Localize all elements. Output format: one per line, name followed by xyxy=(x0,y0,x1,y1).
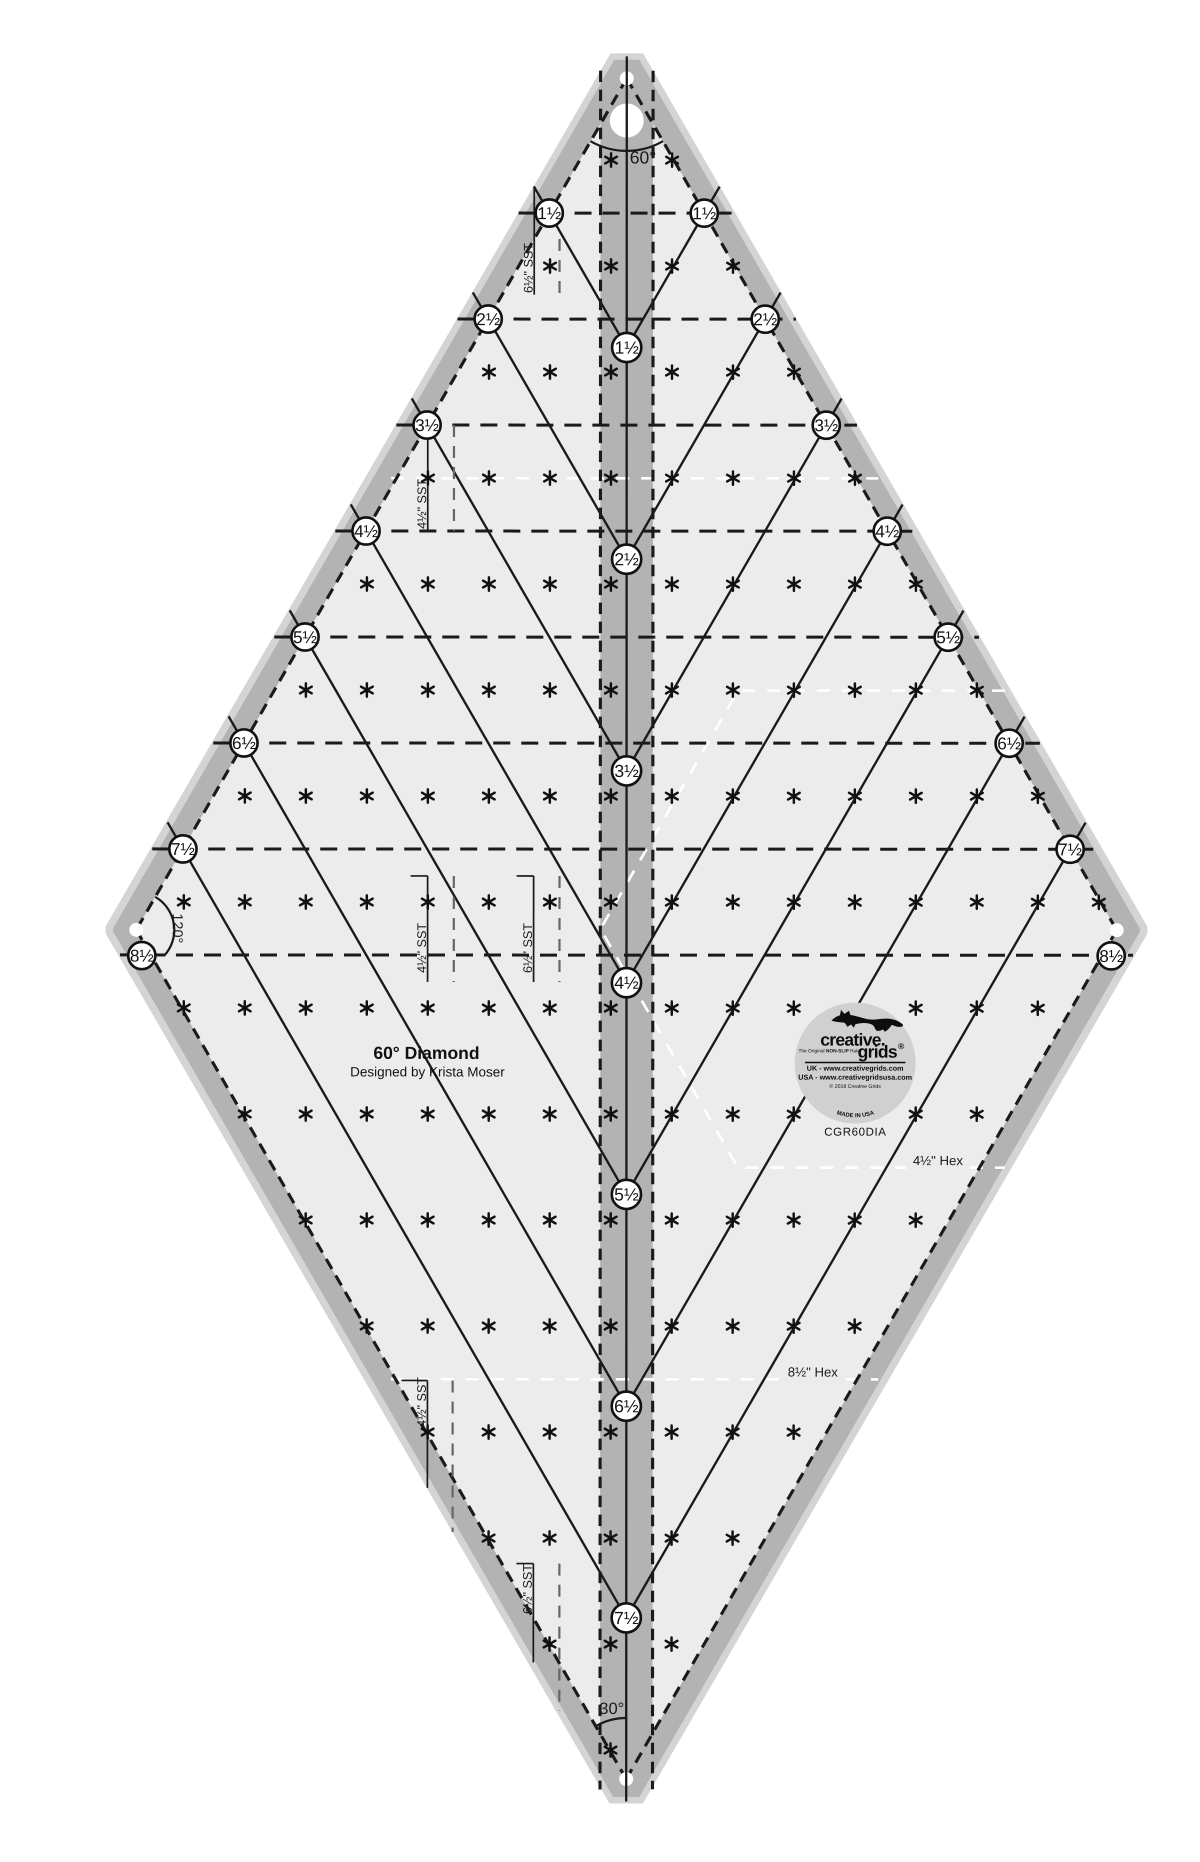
svg-text:USA - www.creativegridsusa.com: USA - www.creativegridsusa.com xyxy=(798,1073,912,1082)
svg-text:4½" SST: 4½" SST xyxy=(415,479,429,529)
svg-text:5½: 5½ xyxy=(614,1184,639,1204)
svg-text:4½" Hex: 4½" Hex xyxy=(913,1153,964,1168)
svg-text:6½" SST: 6½" SST xyxy=(522,243,536,293)
svg-text:7½: 7½ xyxy=(614,1608,639,1628)
svg-text:2½: 2½ xyxy=(753,309,777,329)
svg-text:4½" SST: 4½" SST xyxy=(415,923,429,973)
svg-text:3½: 3½ xyxy=(415,415,439,435)
svg-text:1½: 1½ xyxy=(692,203,716,223)
svg-text:®: ® xyxy=(898,1041,905,1051)
svg-text:8½: 8½ xyxy=(1099,946,1123,966)
svg-text:UK - www.creativegrids.com: UK - www.creativegrids.com xyxy=(807,1064,904,1073)
svg-text:3½: 3½ xyxy=(614,761,639,781)
svg-text:4½" SST: 4½" SST xyxy=(415,1377,429,1427)
svg-text:60° Diamond: 60° Diamond xyxy=(373,1043,479,1063)
svg-text:2½: 2½ xyxy=(476,309,500,329)
svg-text:4½: 4½ xyxy=(875,521,899,541)
svg-text:60°: 60° xyxy=(630,148,656,168)
svg-text:5½: 5½ xyxy=(936,627,960,647)
svg-text:6½" SST: 6½" SST xyxy=(521,923,535,973)
svg-text:30°: 30° xyxy=(599,1700,624,1718)
svg-text:6½: 6½ xyxy=(614,1396,639,1416)
svg-text:1½: 1½ xyxy=(537,203,561,223)
svg-text:3½: 3½ xyxy=(814,415,838,435)
svg-text:120°: 120° xyxy=(169,913,185,943)
svg-text:6½" SST: 6½" SST xyxy=(521,1564,535,1614)
svg-text:8½" Hex: 8½" Hex xyxy=(788,1365,839,1380)
svg-text:6½: 6½ xyxy=(232,733,256,753)
svg-text:4½: 4½ xyxy=(354,521,378,541)
svg-text:2½: 2½ xyxy=(614,549,639,569)
svg-text:CGR60DIA: CGR60DIA xyxy=(824,1127,886,1139)
svg-text:grids: grids xyxy=(858,1042,898,1062)
svg-text:7½: 7½ xyxy=(171,839,195,859)
svg-text:The Original NON-SLIP Ruler: The Original NON-SLIP Ruler xyxy=(798,1048,862,1054)
svg-text:7½: 7½ xyxy=(1058,839,1082,859)
svg-text:Designed by Krista Moser: Designed by Krista Moser xyxy=(350,1064,505,1079)
svg-text:4½: 4½ xyxy=(614,973,639,993)
svg-text:1½: 1½ xyxy=(614,338,639,358)
svg-text:5½: 5½ xyxy=(293,627,317,647)
svg-text:8½: 8½ xyxy=(130,946,154,966)
svg-text:© 2018 Creative Grids: © 2018 Creative Grids xyxy=(829,1083,881,1090)
svg-text:6½: 6½ xyxy=(997,733,1021,753)
